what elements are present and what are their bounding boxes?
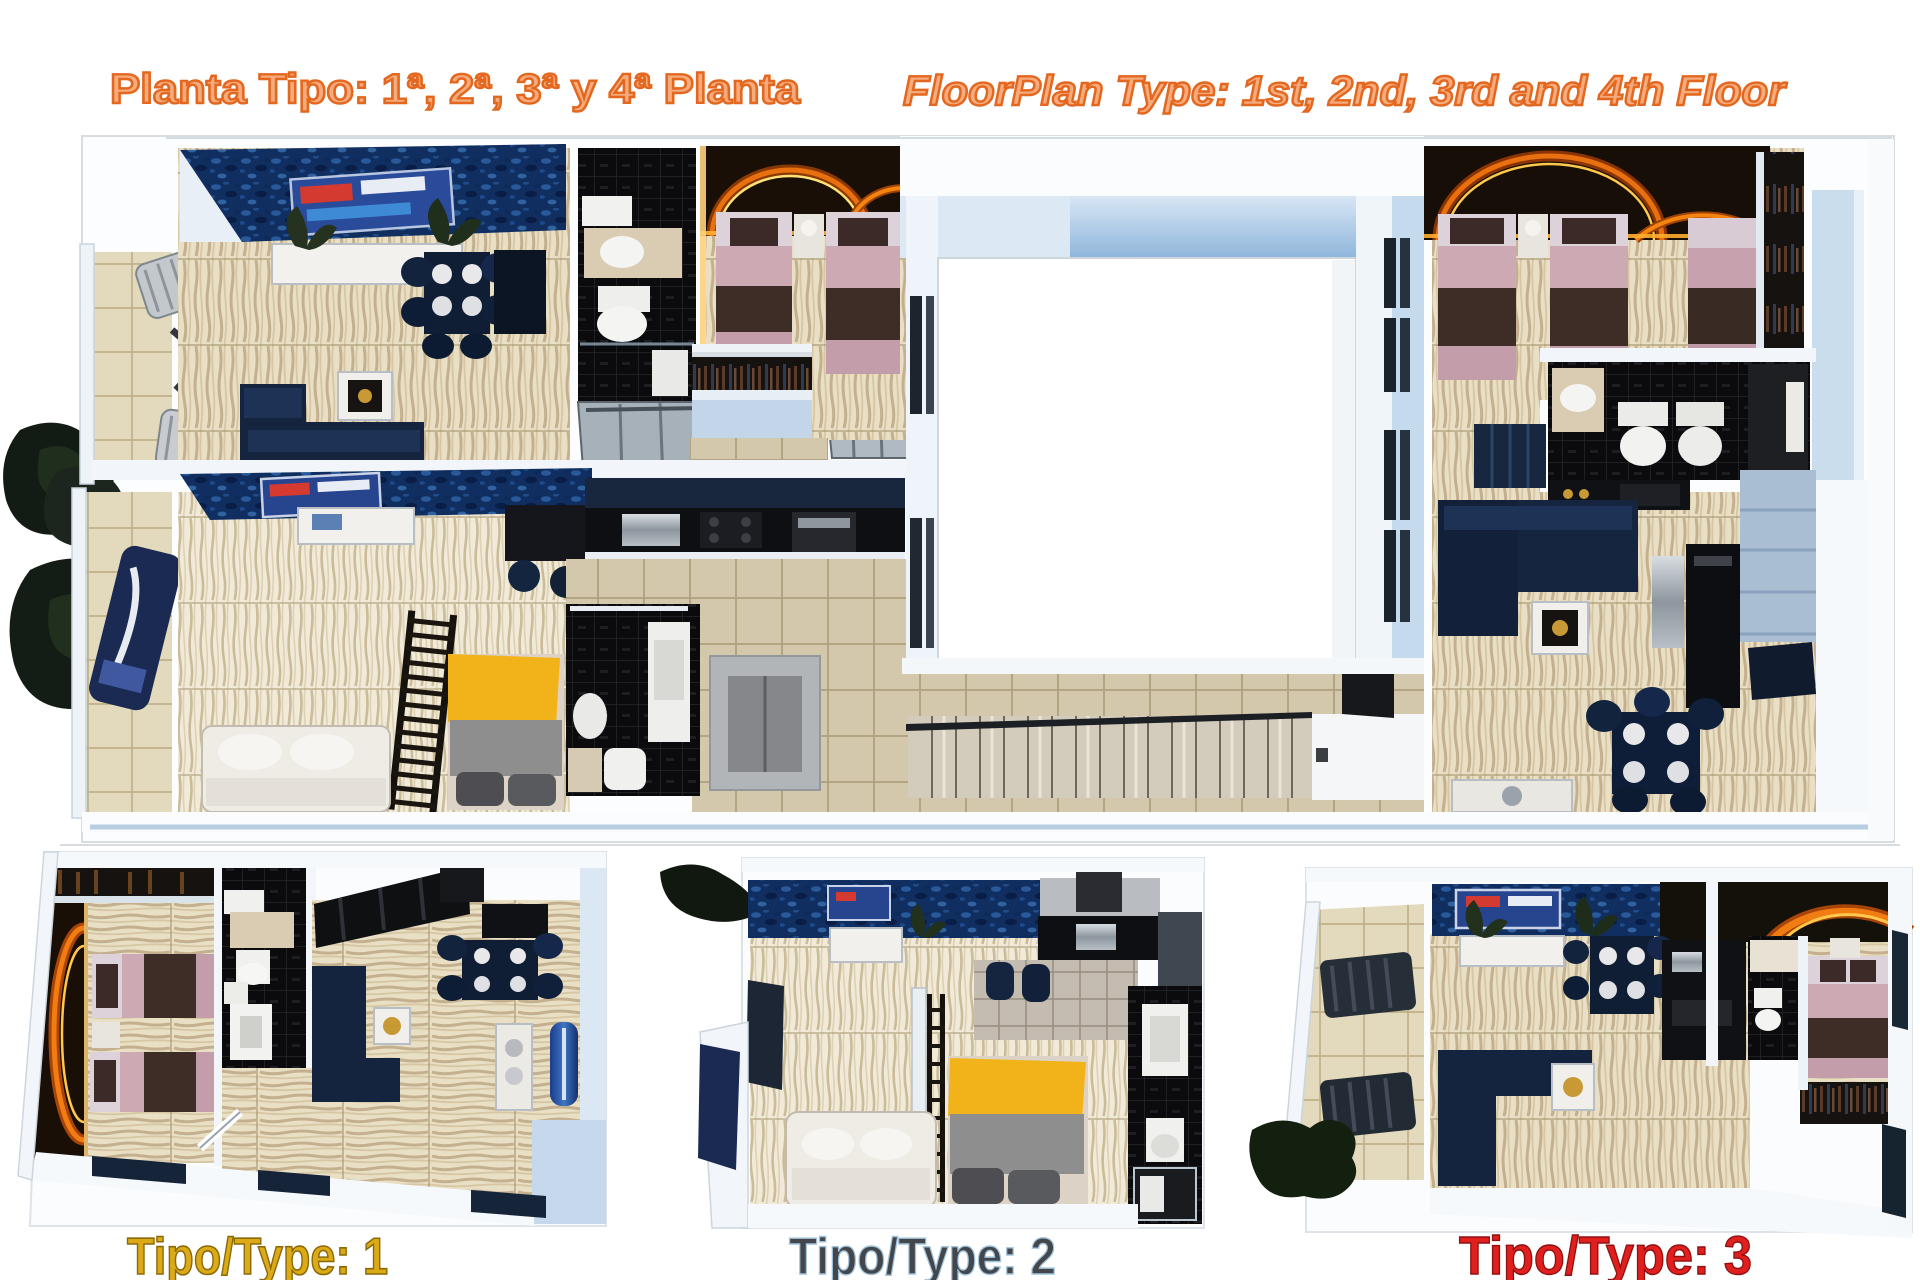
svg-text:Tipo/Type: 2: Tipo/Type: 2 bbox=[789, 1228, 1056, 1280]
svg-text:Planta Tipo: 1ª, 2ª, 3ª y 4ª P: Planta Tipo: 1ª, 2ª, 3ª y 4ª Planta bbox=[110, 65, 801, 112]
svg-text:FloorPlan Type: 1st, 2nd, 3rd: FloorPlan Type: 1st, 2nd, 3rd and 4th Fl… bbox=[903, 67, 1788, 114]
svg-text:Tipo/Type: 1: Tipo/Type: 1 bbox=[127, 1228, 388, 1280]
svg-text:Tipo/Type: 3: Tipo/Type: 3 bbox=[1459, 1226, 1752, 1280]
